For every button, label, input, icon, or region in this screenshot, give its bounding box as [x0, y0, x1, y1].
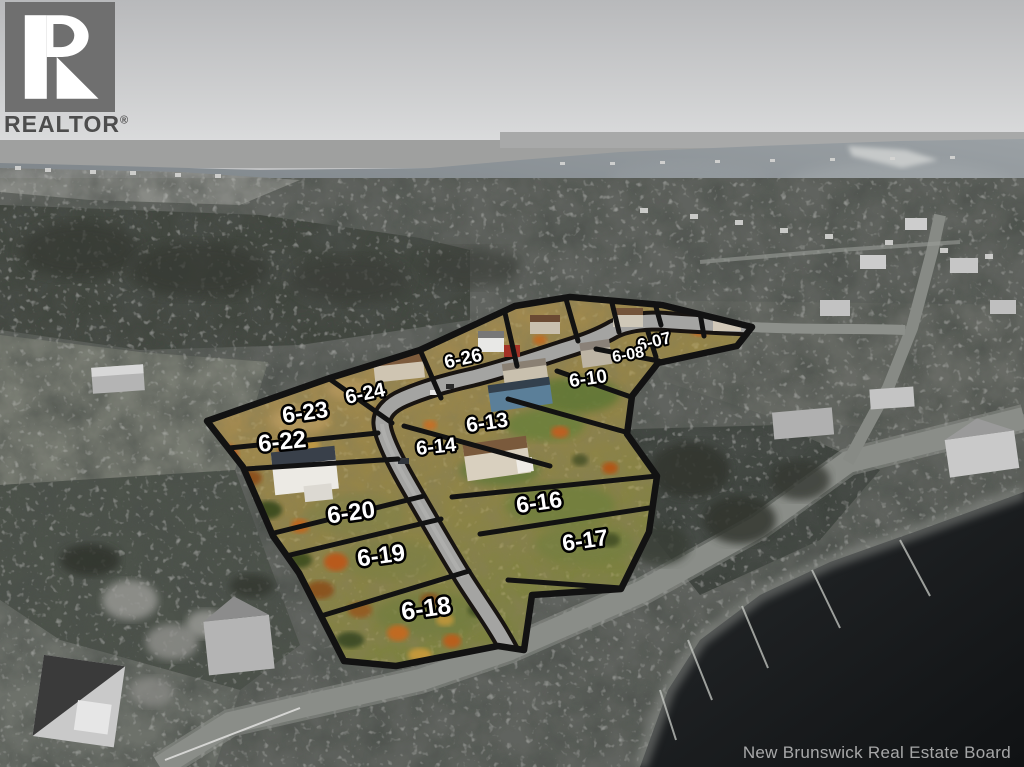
aerial-photo: 6-07 6-08 6-10 6-13 6-14 6-16 6-17 6-18 … — [0, 0, 1024, 767]
realtor-logo: REALTOR® — [4, 2, 122, 136]
registered-symbol: ® — [120, 114, 128, 126]
lot-label-6-22: 6-22 — [257, 426, 308, 458]
realtor-text: REALTOR — [4, 111, 120, 137]
sky — [0, 0, 1024, 152]
watermark: New Brunswick Real Estate Board — [743, 743, 1011, 763]
car-dark — [446, 384, 454, 389]
lot-label-6-14: 6-14 — [415, 434, 458, 460]
exit-road — [752, 327, 905, 330]
aerial-photo-canvas: 6-07 6-08 6-10 6-13 6-14 6-16 6-17 6-18 … — [0, 0, 1024, 767]
realtor-wordmark: REALTOR® — [4, 113, 122, 136]
realtor-r-icon — [4, 2, 116, 112]
